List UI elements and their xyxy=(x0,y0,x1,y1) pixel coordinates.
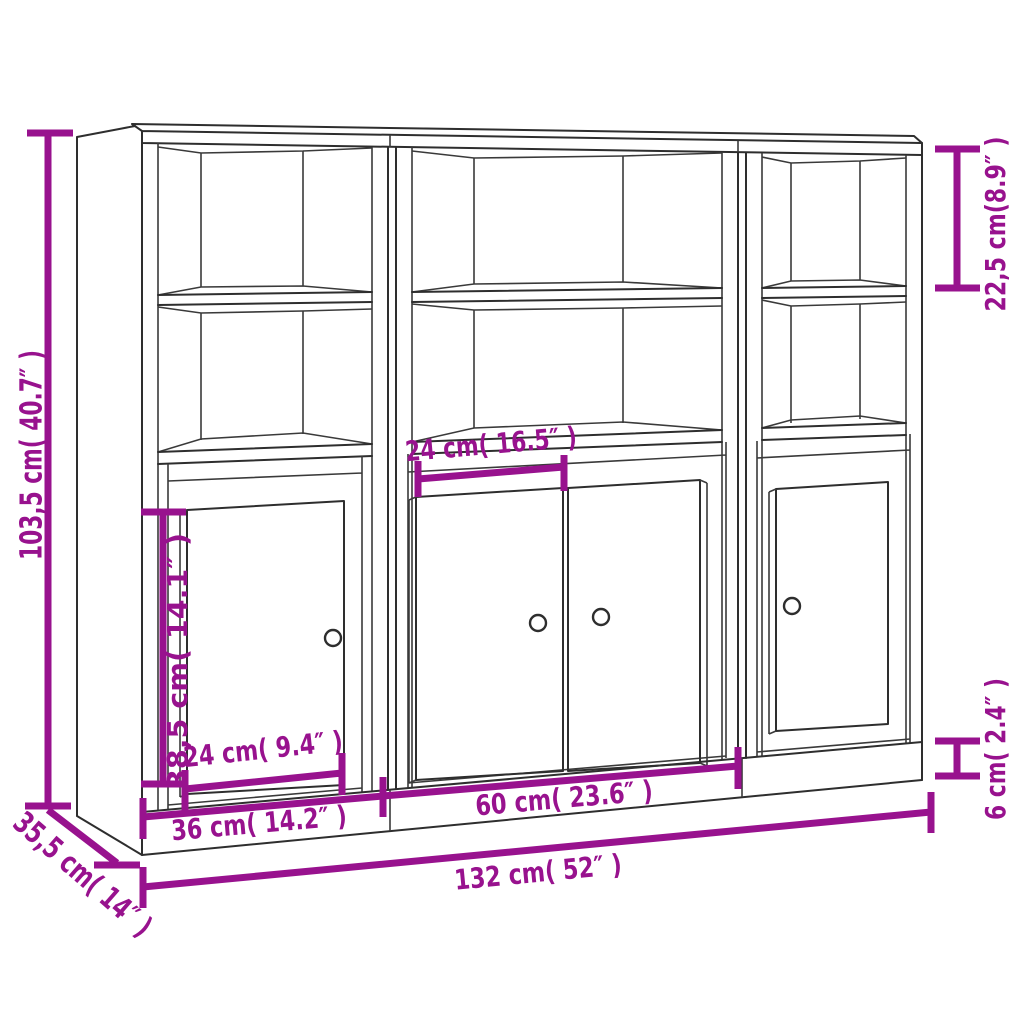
height-label: 103,5 cm( 40.7″ ) xyxy=(15,350,50,560)
depth-label: 35,5 cm( 14″ ) xyxy=(6,805,159,944)
dimension-depth: 35,5 cm( 14″ ) xyxy=(6,805,159,944)
product-diagram: 103,5 cm( 40.7″ ) 35,5 cm( 14″ ) 22,5 cm… xyxy=(0,0,1024,1024)
highboard-illustration: 103,5 cm( 40.7″ ) 35,5 cm( 14″ ) 22,5 cm… xyxy=(0,0,1024,1024)
left-unit-shelves xyxy=(158,147,372,464)
dimension-height: 103,5 cm( 40.7″ ) xyxy=(15,133,74,806)
right-unit-cabinet xyxy=(757,434,910,757)
middle-left-door-knob xyxy=(530,615,546,631)
dimension-plinth: 6 cm( 2.4″ ) xyxy=(935,678,1012,820)
plinth-label: 6 cm( 2.4″ ) xyxy=(979,678,1012,820)
middle-right-door-knob xyxy=(593,609,609,625)
dimension-annotations: 103,5 cm( 40.7″ ) 35,5 cm( 14″ ) 22,5 cm… xyxy=(6,133,1012,944)
dimension-top-compartment: 22,5 cm(8.9″ ) xyxy=(935,137,1012,312)
middle-unit-cabinet xyxy=(408,442,726,788)
left-door-knob xyxy=(325,630,341,646)
middle-clearance-label: 24 cm( 16.5″ ) xyxy=(404,420,578,468)
middle-unit-shelves xyxy=(412,151,722,454)
right-unit-shelves xyxy=(762,157,906,440)
right-door-knob xyxy=(784,598,800,614)
dimension-middle-clearance: 24 cm( 16.5″ ) xyxy=(404,420,578,497)
left-side-panel xyxy=(77,126,142,855)
left-door-width-label: 24 cm( 9.4″ ) xyxy=(182,725,345,775)
top-compartment-label: 22,5 cm(8.9″ ) xyxy=(979,137,1012,312)
top-panel xyxy=(132,124,922,155)
